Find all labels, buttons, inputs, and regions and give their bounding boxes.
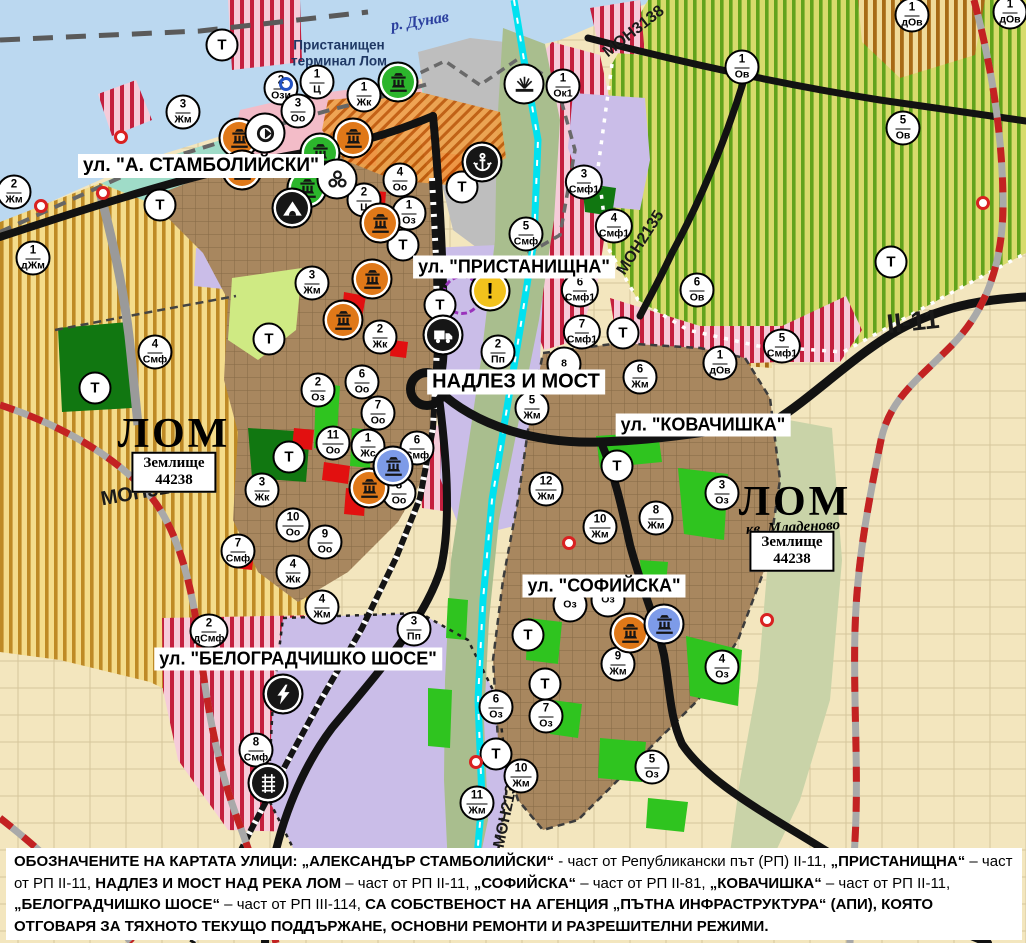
zone-marker: 12Жм [529,472,564,507]
zone-marker: 3Смф1 [565,165,603,200]
zone-marker: 7Смф1 [563,315,601,350]
road-code-label: II-11 [885,304,940,340]
street-name-label: ул. "А. СТАМБОЛИЙСКИ" [78,154,324,178]
monument-icon [323,300,364,341]
circular-arrow-icon [245,113,286,154]
transport-marker: Т [875,246,908,279]
zone-marker: 1Жк [347,78,382,113]
footer-segment: „КОВАЧИШКА“ [710,875,822,892]
street-name-label: ул. "СОФИЙСКА" [522,575,685,598]
cave-icon [272,188,313,229]
footer-segment: – част от РП III-114, [220,896,365,913]
red-point-icon [760,613,774,627]
zone-marker: 10Оо [276,508,311,543]
river-label: р. Дунав [390,9,451,36]
zone-marker: 4Жк [276,555,311,590]
footer-segment: „ПРИСТАНИЩНА“ [831,853,966,870]
fan-icon [504,64,545,105]
zone-marker: 4Смф1 [595,209,633,244]
zone-marker: 5Смф [509,217,544,252]
monument-icon [378,62,419,103]
zone-marker: 10Жм [583,510,618,545]
zone-marker: 7Оз [529,699,564,734]
zone-marker: 11Жм [460,786,495,821]
zone-marker: 11Оо [316,426,351,461]
transport-marker: Т [206,29,239,62]
road-code-label: МОН3138 [600,2,669,61]
port-terminal-label: Пристанищен терминал Лом [291,37,387,68]
zone-marker: 4Оз [705,650,740,685]
street-name-label: ул. "КОВАЧИШКА" [616,414,791,437]
zone-marker: 1дОв [703,346,738,381]
red-point-icon [469,755,483,769]
zone-marker: 2Оз [301,373,336,408]
zone-marker: 5Ов [886,111,921,146]
street-name-label: ул. "БЕЛОГРАДЧИШКО ШОСЕ" [154,648,442,671]
zone-marker: 1Ок1 [546,69,581,104]
zone-marker: 3Оз [705,476,740,511]
monument-icon [373,446,414,487]
monument-icon [644,604,685,645]
land-territory-box: Землище44238 [749,531,834,572]
red-point-icon [34,199,48,213]
street-name-label: ул. "ПРИСТАНИЩНА" [413,256,615,279]
map-overlay: ул. "А. СТАМБОЛИЙСКИ"ул. "ПРИСТАНИЩНА"НА… [0,0,1026,943]
zone-marker: 2Жк [363,320,398,355]
transport-marker: Т [480,738,513,771]
transport-marker: Т [607,317,640,350]
monument-icon [360,203,401,244]
footer-segment: – част от РП II-11, [822,875,950,892]
footer-segment: - част от Републикански път (РП) II-11, [554,853,830,870]
anchor-icon [462,142,503,183]
street-name-label: НАДЛЕЗ И МОСТ [427,370,605,395]
blue-ring-icon [279,77,293,91]
transport-marker: Т [529,668,562,701]
zone-marker: 2дСмф [189,614,228,649]
zone-marker: 2Жм [0,175,32,210]
zone-marker: 6Оо [345,365,380,400]
footer-segment: „СОФИЙСКА“ [474,875,576,892]
zone-marker: 1дОв [895,0,930,33]
zoning-map: ул. "А. СТАМБОЛИЙСКИ"ул. "ПРИСТАНИЩНА"НА… [0,0,1026,943]
transport-marker: Т [601,450,634,483]
footer-note: ОБОЗНАЧЕНИТЕ НА КАРТАТА УЛИЦИ: „АЛЕКСАНД… [6,848,1022,940]
red-point-icon [976,196,990,210]
footer-segment: – част от РП II-11, [341,875,474,892]
zone-marker: 6Оз [479,690,514,725]
red-point-icon [562,536,576,550]
red-point-icon [114,130,128,144]
zone-marker: 5Смф1 [763,329,801,364]
zone-marker: 3Пп [397,612,432,647]
transport-marker: Т [144,189,177,222]
zone-marker: 4Оо [383,163,418,198]
zone-marker: 7Смф [221,534,256,569]
zone-marker: 3Жк [245,473,280,508]
transport-marker: Т [512,619,545,652]
zone-marker: 3Оо [281,94,316,129]
zone-marker: 1дОв [993,0,1026,30]
transport-marker: Т [79,372,112,405]
zone-marker: 4Смф [138,335,173,370]
footer-segment: НАДЛЕЗ И МОСТ НАД РЕКА ЛОМ [95,875,341,892]
red-point-icon [96,186,110,200]
transport-marker: Т [253,323,286,356]
footer-segment: – част от РП II-81, [576,875,710,892]
railway-crossing-icon [248,763,289,804]
footer-segment: ОБОЗНАЧЕНИТЕ НА КАРТАТА УЛИЦИ: „АЛЕКСАНД… [14,853,554,870]
zone-marker: 5Жм [515,391,550,426]
truck-icon [423,315,464,356]
zone-marker: 1Ов [725,50,760,85]
monument-icon [352,259,393,300]
zone-marker: 5Оз [635,750,670,785]
zone-marker: 2Пп [481,335,516,370]
zone-marker: 6Жм [623,360,658,395]
zone-marker: 3Жм [166,95,201,130]
zone-marker: 8Жм [639,501,674,536]
zone-marker: 3Жм [295,266,330,301]
zone-marker: 1дЖм [16,241,51,276]
zone-marker: 6Ов [680,273,715,308]
lightning-icon [263,674,304,715]
zone-marker: 4Жм [305,590,340,625]
zone-marker: 7Оо [361,396,396,431]
zone-marker: 9Оо [308,525,343,560]
footer-segment: „БЕЛОГРАДЧИШКО ШОСЕ“ [14,896,220,913]
transport-marker: Т [273,441,306,474]
land-territory-box: Землище44238 [131,452,216,493]
